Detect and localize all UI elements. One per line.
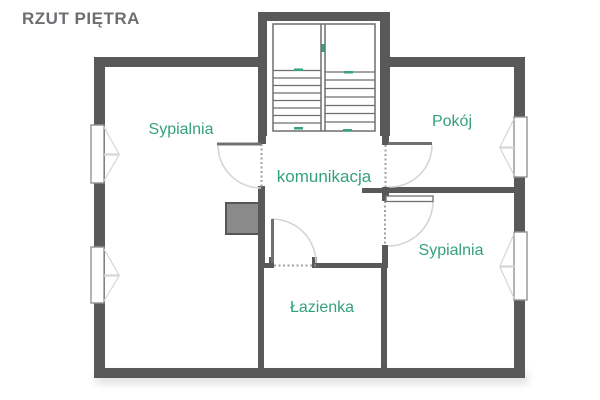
door-swing-arc bbox=[388, 201, 433, 246]
chimney-shaft bbox=[226, 203, 259, 234]
room-label-pokoj: Pokój bbox=[432, 113, 472, 131]
staircase bbox=[273, 24, 375, 132]
room-divider-wall bbox=[386, 187, 515, 193]
bath-left-wall bbox=[258, 268, 264, 368]
exterior-walls bbox=[94, 12, 525, 378]
stair-direction-marks bbox=[294, 44, 353, 132]
stair-treads-right bbox=[325, 72, 375, 122]
divider-stub-hall-side bbox=[362, 188, 382, 193]
room-label-sypialnia-2: Sypialnia bbox=[419, 242, 484, 260]
stair-bay-wall-right bbox=[380, 12, 390, 136]
stair-bay-wall-left bbox=[258, 12, 267, 136]
door-pokoj bbox=[386, 144, 433, 188]
room-label-lazienka: Łazienka bbox=[290, 299, 354, 317]
door-leaf bbox=[386, 196, 433, 202]
floor-plan-page: RZUT PIĘTRA Sypialnia Pokój komunikacja … bbox=[0, 0, 600, 400]
door-swing-arc bbox=[218, 146, 261, 188]
door-swing-arc bbox=[272, 219, 316, 263]
door-bathroom bbox=[272, 219, 316, 266]
bath-top-wall-right bbox=[316, 263, 388, 268]
hall-right-wall-stub bbox=[382, 131, 389, 145]
wall-top-right bbox=[383, 57, 525, 67]
floor-plan-drawing bbox=[0, 0, 600, 400]
bath-right-wall bbox=[381, 268, 387, 368]
door-bedroom2 bbox=[385, 196, 433, 246]
stair-treads-left bbox=[273, 71, 321, 124]
windows bbox=[91, 117, 527, 303]
wall-top-left bbox=[94, 57, 267, 67]
door-bedroom1 bbox=[217, 144, 262, 188]
page-title: RZUT PIĘTRA bbox=[22, 9, 140, 29]
wall-bottom bbox=[94, 368, 525, 378]
room-label-komunikacja: komunikacja bbox=[277, 167, 372, 187]
hall-left-wall-stub bbox=[258, 131, 266, 144]
window-pokoj bbox=[500, 117, 527, 177]
wall-left bbox=[94, 57, 105, 378]
door-swing-arc bbox=[389, 145, 432, 187]
room-label-sypialnia-1: Sypialnia bbox=[149, 121, 214, 139]
wall-right bbox=[514, 57, 525, 377]
window-bedroom2 bbox=[500, 232, 527, 300]
stair-bay-wall-top bbox=[258, 12, 390, 21]
